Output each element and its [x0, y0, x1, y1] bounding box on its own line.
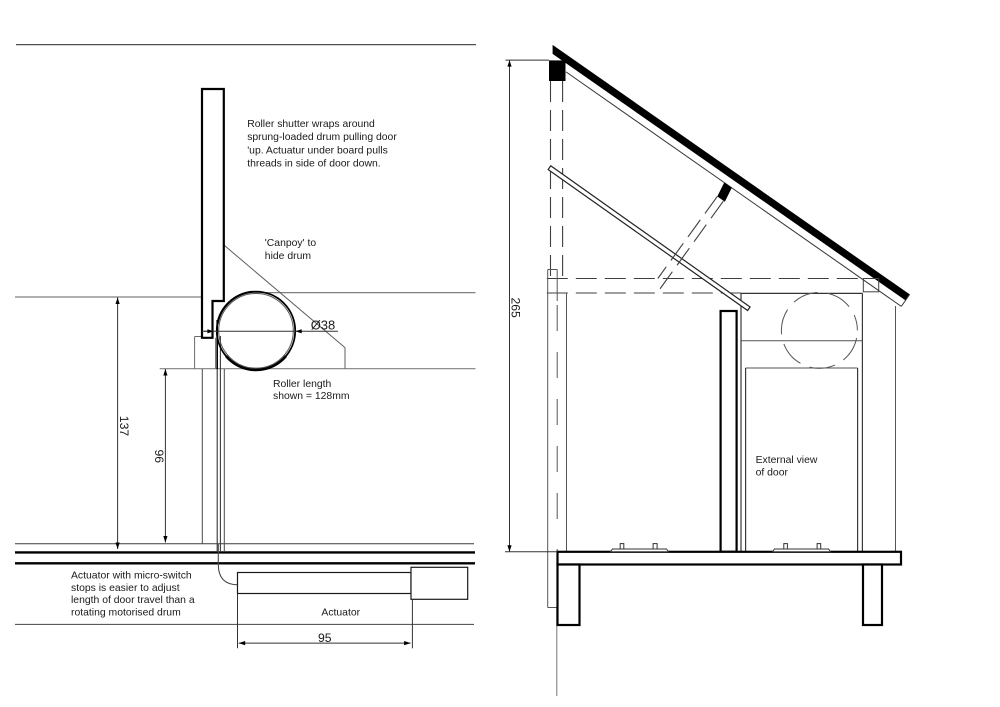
svg-text:96: 96 — [152, 450, 166, 464]
svg-text:Roller length: Roller length — [273, 379, 332, 390]
svg-text:External view: External view — [756, 455, 818, 466]
svg-text:265: 265 — [509, 298, 523, 319]
svg-text:shown = 128mm: shown = 128mm — [273, 391, 350, 402]
svg-text:of door: of door — [756, 468, 789, 479]
svg-text:137: 137 — [117, 416, 131, 437]
svg-text:hide drum: hide drum — [265, 251, 311, 262]
svg-text:'Canpoy' to: 'Canpoy' to — [265, 238, 317, 249]
svg-text:sprung-loaded drum pulling doo: sprung-loaded drum pulling door — [247, 132, 397, 143]
svg-text:stops is easier to adjust: stops is easier to adjust — [71, 583, 180, 594]
svg-text:threads in side of door down.: threads in side of door down. — [247, 159, 380, 170]
svg-text:95: 95 — [318, 631, 332, 645]
svg-text:length of door travel than a: length of door travel than a — [71, 595, 195, 606]
svg-text:Ø38: Ø38 — [311, 318, 336, 333]
svg-text:Actuator: Actuator — [321, 608, 360, 619]
svg-text:Roller shutter wraps around: Roller shutter wraps around — [247, 119, 375, 130]
svg-text:Actuator with micro-switch: Actuator with micro-switch — [71, 571, 192, 582]
svg-text:rotating motorised drum: rotating motorised drum — [71, 607, 181, 618]
svg-text:'up. Actuatur under board pull: 'up. Actuatur under board pulls — [247, 145, 388, 156]
